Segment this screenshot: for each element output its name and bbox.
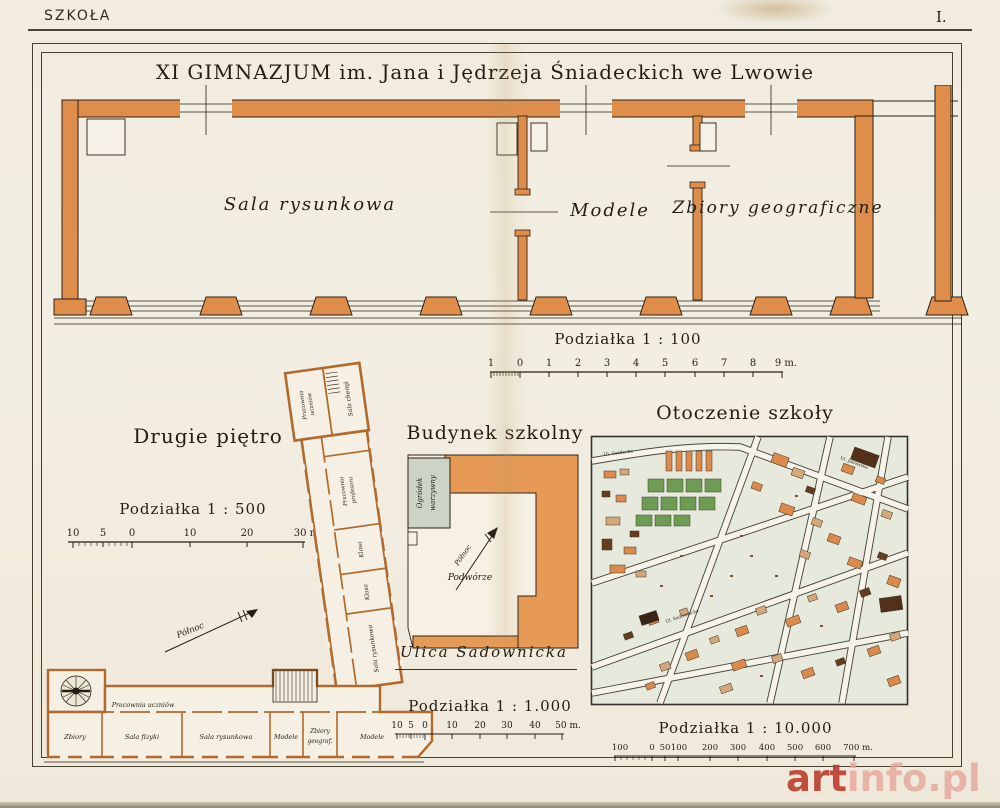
scale-10000-title: Podziałka 1 : 10.000 bbox=[638, 719, 853, 737]
svg-text:100: 100 bbox=[612, 743, 628, 753]
plate-number: I. bbox=[936, 8, 947, 26]
corner-label-szkola: SZKOŁA bbox=[44, 8, 111, 24]
header-rule bbox=[28, 29, 972, 31]
svg-text:5: 5 bbox=[408, 721, 414, 731]
svg-text:0: 0 bbox=[649, 743, 654, 753]
svg-text:300: 300 bbox=[730, 743, 746, 753]
svg-text:1: 1 bbox=[546, 358, 552, 369]
svg-text:40: 40 bbox=[529, 721, 541, 731]
svg-text:50 m.: 50 m. bbox=[555, 721, 581, 731]
svg-text:Ogródek: Ogródek bbox=[416, 478, 424, 509]
scale-100-bar: 1 0 1 2 3 4 5 6 7 8 9 m. bbox=[480, 355, 800, 383]
svg-text:Sala rysunkowa: Sala rysunkowa bbox=[200, 733, 253, 741]
svg-text:9 m.: 9 m. bbox=[775, 358, 797, 369]
svg-text:400: 400 bbox=[759, 743, 775, 753]
svg-text:warzywny: warzywny bbox=[429, 474, 437, 511]
svg-text:200: 200 bbox=[702, 743, 718, 753]
surroundings-map: Ul. Gródecka Ul. Janowska Ul. Sadownicka bbox=[590, 435, 910, 707]
scale-1000-bar: 10 5 0 10 20 30 40 50 m. bbox=[390, 718, 590, 746]
left-wall-foot bbox=[54, 299, 86, 315]
site-plan: Ogródek warzywny Północ Podwórze bbox=[398, 448, 588, 660]
svg-text:0: 0 bbox=[517, 358, 523, 369]
svg-text:20: 20 bbox=[474, 721, 486, 731]
svg-text:700 m.: 700 m. bbox=[843, 743, 873, 753]
svg-text:Zbiory: Zbiory bbox=[309, 728, 330, 735]
svg-text:1: 1 bbox=[488, 358, 494, 369]
svg-text:Podwórze: Podwórze bbox=[447, 572, 492, 583]
window-sill-lines bbox=[54, 301, 962, 324]
watermark-light: info.pl bbox=[847, 757, 981, 800]
street-label-sadownicka: Ulica Sadownicka bbox=[400, 643, 568, 661]
stoves bbox=[87, 119, 716, 155]
svg-text:30: 30 bbox=[501, 721, 513, 731]
second-floor-plan: Północ Pracownia uczniów Sala chemji bbox=[40, 360, 440, 770]
north-arrow-plan: Północ bbox=[165, 609, 258, 652]
svg-text:Pracownia uczniów: Pracownia uczniów bbox=[111, 701, 175, 709]
svg-text:10: 10 bbox=[391, 721, 403, 731]
svg-text:10: 10 bbox=[446, 721, 458, 731]
watermark: artinfo.pl bbox=[786, 757, 981, 800]
svg-text:6: 6 bbox=[692, 358, 698, 369]
svg-text:5: 5 bbox=[662, 358, 668, 369]
svg-text:Północ: Północ bbox=[174, 620, 206, 641]
scale-1000-title: Podziałka 1 : 1.000 bbox=[400, 697, 580, 715]
svg-text:500: 500 bbox=[787, 743, 803, 753]
svg-text:Sala fizyki: Sala fizyki bbox=[125, 733, 159, 741]
paper-smudge bbox=[715, 0, 835, 24]
svg-text:7: 7 bbox=[721, 358, 727, 369]
room-label-sala-rysunkowa: Sala rysunkowa bbox=[180, 194, 440, 215]
room-label-zbiory-geograficzne: Zbiory geograficzne bbox=[658, 198, 898, 218]
street-line bbox=[395, 669, 577, 670]
svg-text:Zbiory: Zbiory bbox=[63, 733, 86, 741]
adjacent-wall-fragment bbox=[935, 85, 951, 301]
svg-text:geograf.: geograf. bbox=[307, 738, 332, 745]
page-title: XI GIMNAZJUM im. Jana i Jędrzeja Śniadec… bbox=[135, 60, 835, 84]
svg-text:50: 50 bbox=[660, 743, 671, 753]
svg-text:600: 600 bbox=[815, 743, 831, 753]
svg-text:3: 3 bbox=[604, 358, 610, 369]
left-wall bbox=[62, 100, 78, 300]
svg-text:0: 0 bbox=[422, 721, 428, 731]
svg-text:8: 8 bbox=[750, 358, 756, 369]
vertical-wing: Pracownia uczniów Sala chemji bbox=[285, 363, 404, 692]
site-plan-title: Budynek szkolny bbox=[400, 422, 590, 444]
scan-edge bbox=[0, 802, 1000, 808]
watermark-bold: art bbox=[786, 757, 847, 800]
scanned-plate: SZKOŁA I. XI GIMNAZJUM im. Jana i Jędrze… bbox=[0, 0, 1000, 808]
svg-text:100: 100 bbox=[671, 743, 687, 753]
scale-100-title: Podziałka 1 : 100 bbox=[523, 330, 733, 348]
svg-text:Modele: Modele bbox=[273, 733, 298, 741]
svg-text:2: 2 bbox=[575, 358, 581, 369]
svg-text:4: 4 bbox=[633, 358, 639, 369]
map-title: Otoczenie szkoły bbox=[635, 402, 855, 424]
svg-text:Modele: Modele bbox=[359, 733, 384, 741]
